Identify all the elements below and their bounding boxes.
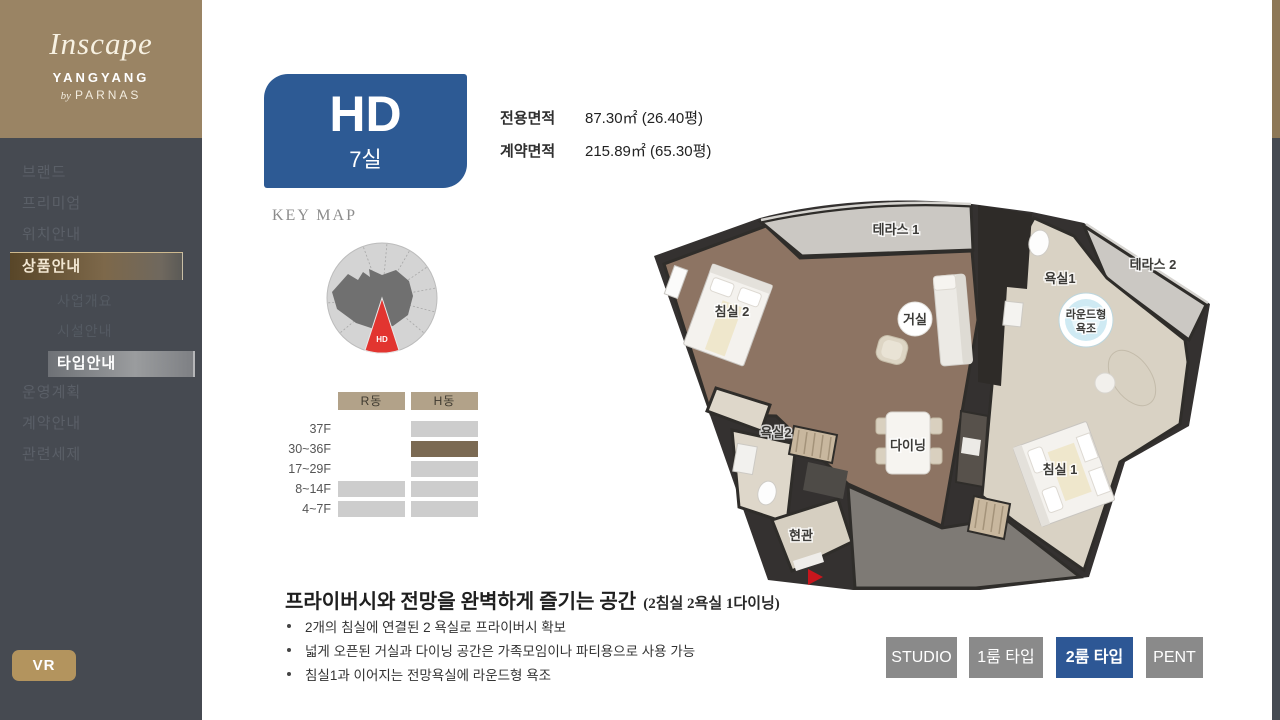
- floor-col-r: R동: [338, 392, 405, 410]
- plan-label-bedroom1: 침실 1: [1043, 462, 1078, 477]
- keymap-diagram: HD: [320, 236, 446, 362]
- plan-label-bath1: 욕실1: [1044, 271, 1075, 286]
- plan-wardrobe-bedroom1: [968, 496, 1010, 539]
- unit-description-title: 프라이버시와 전망을 완벽하게 즐기는 공간 (2침실 2욕실 1다이닝): [285, 585, 780, 614]
- logo-byline: byPARNAS: [0, 88, 202, 102]
- tab-1room[interactable]: 1룸 타입: [969, 637, 1043, 678]
- floor-cell-r-8-14f: [338, 481, 405, 497]
- plan-label-bath2: 욕실2: [760, 425, 791, 440]
- description-title-suffix: (2침실 2욕실 1다이닝): [643, 592, 780, 613]
- sidebar-subitem-overview[interactable]: 사업개요: [0, 290, 202, 312]
- floor-row-label: 8~14F: [240, 481, 331, 497]
- sidebar-item-location[interactable]: 위치안내: [0, 224, 202, 246]
- sidebar-subitem-facilities[interactable]: 시설안내: [0, 320, 202, 342]
- logo-brand-text: PARNAS: [75, 88, 141, 102]
- right-edge-strip-dark: [1272, 138, 1280, 720]
- plan-label-dining: 다이닝: [890, 438, 926, 453]
- bullet-dot-icon: [287, 648, 291, 652]
- floor-cell-h-8-14f: [411, 481, 478, 497]
- logo-script-text: Inscape: [0, 26, 202, 62]
- brand-logo: Inscape YANGYANG byPARNAS: [0, 0, 202, 138]
- floor-col-h: H동: [411, 392, 478, 410]
- floor-row-label: 4~7F: [240, 501, 331, 517]
- plan-label-terrace1: 테라스 1: [873, 222, 920, 237]
- plan-sink-bath1: [1003, 301, 1023, 327]
- floor-row-label: 17~29F: [240, 461, 331, 477]
- bullet-dot-icon: [287, 624, 291, 628]
- floor-cell-h-17-29f: [411, 461, 478, 477]
- plan-label-living: 거실: [903, 312, 927, 327]
- floor-plan: 테라스 1 테라스 2 욕실1 라운드형 욕조 거실 침실 2 욕실2 다이닝 …: [640, 190, 1215, 595]
- plan-label-bedroom2: 침실 2: [715, 304, 750, 319]
- tab-penthouse[interactable]: PENT: [1146, 637, 1203, 678]
- plan-label-tub-line2: 욕조: [1076, 322, 1096, 335]
- description-bullet: 침실1과 이어지는 전망욕실에 라운드형 욕조: [287, 666, 551, 682]
- exclusive-area-label: 전용면적: [500, 107, 585, 128]
- tab-studio[interactable]: STUDIO: [886, 637, 957, 678]
- keymap-title: KEY MAP: [272, 207, 357, 225]
- unit-code: HD: [329, 88, 401, 140]
- contract-area-row: 계약면적 215.89㎡ (65.30평): [500, 140, 711, 160]
- floor-cell-h-4-7f: [411, 501, 478, 517]
- description-bullet: 넓게 오픈된 거실과 다이닝 공간은 가족모임이나 파티용으로 사용 가능: [287, 642, 695, 658]
- page: Inscape YANGYANG byPARNAS 브랜드 프리미엄 위치안내 …: [0, 0, 1280, 720]
- floor-cell-h-37f: [411, 421, 478, 437]
- logo-by-text: by: [61, 90, 71, 102]
- plan-side-table: [1095, 373, 1115, 393]
- logo-region-text: YANGYANG: [0, 70, 202, 85]
- floor-cell-h-30-36f-highlight: [411, 441, 478, 457]
- sidebar-item-products[interactable]: 상품안내: [10, 252, 183, 280]
- unit-room-count: 7실: [349, 142, 381, 174]
- right-edge-strip-brown: [1272, 0, 1280, 138]
- sidebar-item-operation[interactable]: 운영계획: [0, 382, 202, 404]
- plan-kitchen-sink: [961, 437, 981, 456]
- sidebar-item-brand[interactable]: 브랜드: [0, 162, 202, 184]
- plan-label-terrace2: 테라스 2: [1130, 257, 1177, 272]
- description-title-text: 프라이버시와 전망을 완벽하게 즐기는 공간: [285, 585, 636, 614]
- floor-row-label: 30~36F: [240, 441, 331, 457]
- tab-2room[interactable]: 2룸 타입: [1056, 637, 1133, 678]
- bullet-text: 2개의 침실에 연결된 2 욕실로 프라이버시 확보: [305, 616, 566, 636]
- exclusive-area-row: 전용면적 87.30㎡ (26.40평): [500, 107, 703, 127]
- keymap-marker-label: HD: [376, 335, 388, 344]
- bullet-text: 침실1과 이어지는 전망욕실에 라운드형 욕조: [305, 664, 551, 684]
- floor-row-label: 37F: [240, 421, 331, 437]
- contract-area-label: 계약면적: [500, 140, 585, 161]
- sidebar: Inscape YANGYANG byPARNAS 브랜드 프리미엄 위치안내 …: [0, 0, 202, 720]
- sidebar-item-premium[interactable]: 프리미엄: [0, 193, 202, 215]
- bullet-text: 넓게 오픈된 거실과 다이닝 공간은 가족모임이나 파티용으로 사용 가능: [305, 640, 695, 660]
- plan-label-tub-line1: 라운드형: [1066, 307, 1106, 321]
- contract-area-value: 215.89㎡ (65.30평): [585, 140, 711, 161]
- vr-button[interactable]: VR: [12, 650, 76, 681]
- sidebar-subitem-types[interactable]: 타입안내: [48, 351, 195, 377]
- floor-cell-r-4-7f: [338, 501, 405, 517]
- unit-type-badge: HD 7실: [264, 74, 467, 188]
- sidebar-item-tax[interactable]: 관련세제: [0, 444, 202, 466]
- description-bullet: 2개의 침실에 연결된 2 욕실로 프라이버시 확보: [287, 618, 566, 634]
- bullet-dot-icon: [287, 672, 291, 676]
- plan-label-entrance: 현관: [789, 528, 813, 543]
- plan-sink-bath2: [733, 443, 758, 474]
- exclusive-area-value: 87.30㎡ (26.40평): [585, 107, 703, 128]
- sidebar-item-contract[interactable]: 계약안내: [0, 413, 202, 435]
